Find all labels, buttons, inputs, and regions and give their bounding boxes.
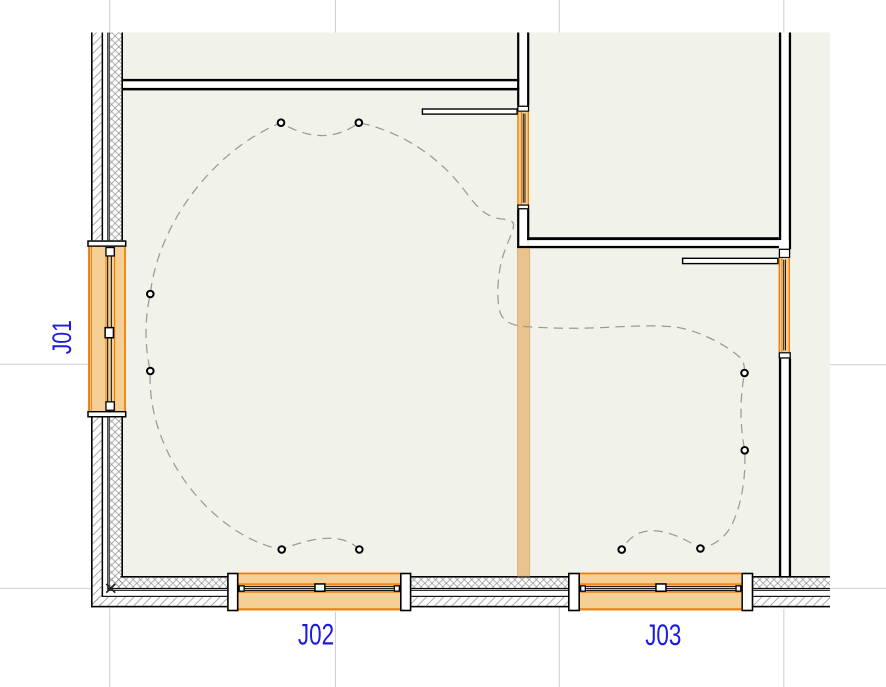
svg-text:J01: J01: [47, 320, 77, 354]
svg-text:J02: J02: [298, 618, 334, 651]
svg-text:J03: J03: [645, 619, 681, 652]
